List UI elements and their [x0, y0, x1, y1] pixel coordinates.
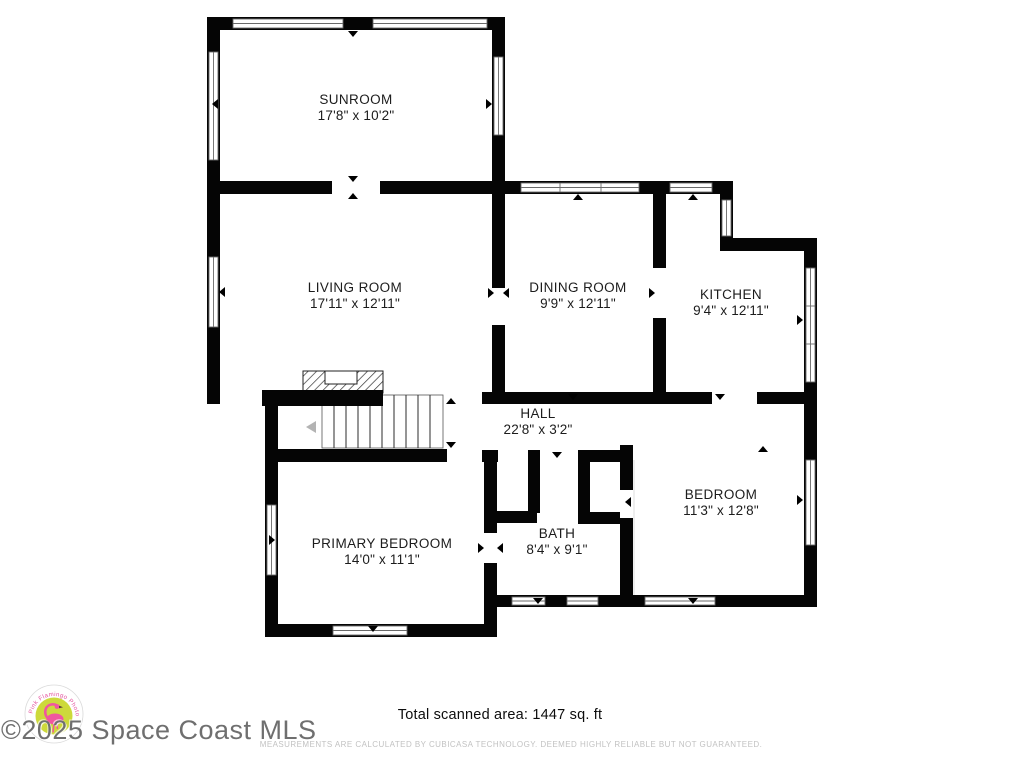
room-dimensions: 9'4" x 12'11" — [693, 303, 769, 318]
room-name: DINING ROOM — [529, 280, 626, 295]
windows-group — [209, 19, 815, 635]
room-label-sunroom: SUNROOM 17'8" x 10'2" — [318, 92, 395, 123]
room-dimensions: 8'4" x 9'1" — [526, 542, 587, 557]
door-markers-group — [212, 31, 803, 632]
room-dimensions: 22'8" x 3'2" — [504, 422, 573, 437]
room-name: BATH — [526, 526, 587, 541]
room-dimensions: 11'3" x 12'8" — [683, 503, 759, 518]
room-label-bedroom: BEDROOM 11'3" x 12'8" — [683, 487, 759, 518]
room-label-living-room: LIVING ROOM 17'11" x 12'11" — [308, 280, 402, 311]
room-dimensions: 17'8" x 10'2" — [318, 108, 395, 123]
room-name: HALL — [504, 406, 573, 421]
room-dimensions: 9'9" x 12'11" — [529, 296, 626, 311]
stairs-direction-arrow-icon — [306, 421, 316, 433]
room-name: KITCHEN — [693, 287, 769, 302]
room-dimensions: 14'0" x 11'1" — [312, 552, 453, 567]
room-dimensions: 17'11" x 12'11" — [308, 296, 402, 311]
room-name: PRIMARY BEDROOM — [312, 536, 453, 551]
room-name: BEDROOM — [683, 487, 759, 502]
room-name: SUNROOM — [318, 92, 395, 107]
floor-plan-page: SUNROOM 17'8" x 10'2" LIVING ROOM 17'11"… — [0, 0, 1024, 768]
room-label-dining-room: DINING ROOM 9'9" x 12'11" — [529, 280, 626, 311]
floor-plan-svg — [0, 0, 1024, 768]
room-label-hall: HALL 22'8" x 3'2" — [504, 406, 573, 437]
watermark-copyright: ©2025 Space Coast MLS — [1, 715, 317, 746]
fireplace — [303, 371, 383, 393]
room-label-bath: BATH 8'4" x 9'1" — [526, 526, 587, 557]
room-label-kitchen: KITCHEN 9'4" x 12'11" — [693, 287, 769, 318]
room-label-primary-bedroom: PRIMARY BEDROOM 14'0" x 11'1" — [312, 536, 453, 567]
room-name: LIVING ROOM — [308, 280, 402, 295]
walls-group — [207, 17, 817, 637]
